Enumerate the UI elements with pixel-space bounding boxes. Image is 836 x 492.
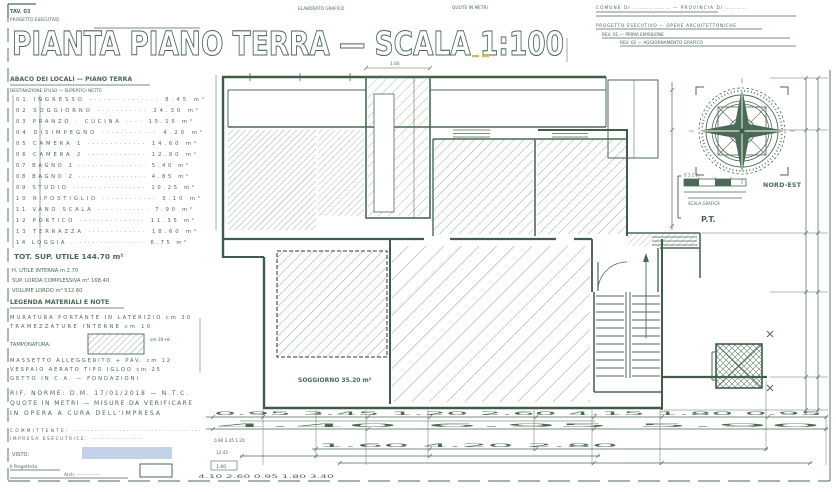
legend-footer: QUOTE IN METRI — MISURE DA VERIFICARE <box>10 400 192 407</box>
sheet-tag: TAV. 03 <box>10 9 31 15</box>
scale-ticks-label: 0 1 2 5 <box>684 173 698 178</box>
title-accent-mark <box>472 55 479 57</box>
title-accent-mark2 <box>482 55 489 57</box>
dim-chain-values: 1.60 4.20 2.80 <box>318 443 620 449</box>
schedule-total: TOT. SUP. UTILE 144.70 m² <box>14 252 124 261</box>
schedule-row: 06 CAMERA 2 ············· 12.80 m² <box>16 152 196 158</box>
scale-caption: SCALA GRAFICA <box>688 201 720 206</box>
detail-square <box>712 344 762 388</box>
schedule-row: 02 SOGGIORNO ··········· 24.30 m² <box>16 108 198 114</box>
schedule-row: 03 PRANZO · CUCINA ···· 15.15 m² <box>16 119 192 125</box>
signature-name: Il Progettista <box>10 464 38 470</box>
dim-label: 1.60 <box>390 61 400 67</box>
legend-heading: LEGENDA MATERIALI E NOTE <box>10 299 109 306</box>
dim-left-values: 12.45 <box>216 450 228 455</box>
revision-row: REV. 01 — PRIMA EMISSIONE <box>602 32 664 38</box>
revision-row: PROGETTO ESECUTIVO — OPERE ARCHITETTONIC… <box>596 23 736 29</box>
floor-plan: SOGGIORNO 35.20 m² <box>216 73 773 410</box>
room-label: SOGGIORNO 35.20 m² <box>298 377 372 384</box>
plan-level-stamp: P.T. <box>701 215 716 224</box>
legend-row: GETTO IN C.A. — FONDAZIONI <box>10 376 138 382</box>
dim-chain-values: 4.40 6.95 5.90 <box>214 423 826 429</box>
room-hatch-nw <box>228 130 316 230</box>
dim-left-values: 0.90 3.45 1.20 <box>214 438 245 443</box>
schedule-heading: ABACO DEI LOCALI — PIANO TERRA <box>10 76 132 83</box>
dim-chain-values: 0.95 3.45 1.20 2.60 4.15 1.80 0.95 <box>214 411 824 417</box>
title-note-right: QUOTE IN METRI <box>452 5 488 11</box>
schedule-row: 05 CAMERA 1 ············· 14.60 m² <box>16 141 196 147</box>
legend-row: MURATURA PORTANTE IN LATERIZIO cm 30 <box>10 315 190 321</box>
stair-arrow-head <box>643 253 649 262</box>
door-arc <box>598 262 627 291</box>
legend-footer: IN OPERA A CURA DELL'IMPRESA <box>10 410 161 417</box>
selection-highlight[interactable] <box>82 447 172 459</box>
drawing-sheet: TAV. 03 PROGETTO ESECUTIVO ELABORATO GRA… <box>0 0 836 492</box>
visto-label: VISTO: <box>12 452 30 458</box>
footer-row: IMPRESA ESECUTRICE: ·················· <box>10 436 142 442</box>
footer-row: COMMITTENTE: ···························… <box>10 428 200 434</box>
room-hatch-center <box>392 246 590 402</box>
schedule-row: 04 DISIMPEGNO ············ 4.20 m² <box>16 130 202 136</box>
revision-row: COMUNE DI ………………… — PROVINCIA DI ………… <box>596 5 746 11</box>
sheet-subtag: PROGETTO ESECUTIVO <box>10 17 60 23</box>
schedule-note: H. UTILE INTERNA m 2.70 <box>12 268 78 274</box>
sheet-title: PIANTA PIANO TERRA — SCALA 1:100 <box>12 24 564 63</box>
footer-notes: COMMITTENTE: ···························… <box>10 428 200 478</box>
dim-left-values: 1.60 <box>216 464 226 470</box>
room-hatch-ne1 <box>434 139 533 234</box>
schedule-row: 14 LOGGIA ·················· 6.75 m² <box>16 240 186 246</box>
compass-rose: NORD-EST 0 1 2 5 SCALA GRAFICA P.T. <box>678 78 802 224</box>
schedule-row: 10 RIPOSTIGLIO ············ 3.10 m² <box>16 196 200 202</box>
schedule-row: 01 INGRESSO ··············· 8.45 m² <box>16 97 204 103</box>
schedule-row: 11 VANO SCALA ············ 7.90 m² <box>16 207 192 213</box>
room-hatch-ne2 <box>537 139 626 234</box>
revision-table: COMUNE DI ………………… — PROVINCIA DI ………… PR… <box>596 5 796 46</box>
schedule-subheading: DESTINAZIONE D'USO — SUPERFICI NETTE <box>10 88 102 94</box>
title-note-left: ELABORATO GRAFICO <box>298 6 345 12</box>
schedule-row: 09 STUDIO ················· 10.25 m² <box>16 185 194 191</box>
revision-row: REV. 02 — AGGIORNAMENTO GRAFICO <box>620 40 703 46</box>
compass-label: NORD-EST <box>763 182 802 189</box>
legend-row: TRAMEZZATURE INTERNE cm 10 <box>9 324 150 330</box>
schedule-row: 07 BAGNO 1 ················ 5.40 m² <box>16 163 188 169</box>
stamp-box <box>140 464 172 477</box>
schedule-row: 08 BAGNO 2 ················ 4.85 m² <box>16 174 188 180</box>
signature-title: Arch. ·················· <box>64 472 101 478</box>
schedule-note: SUP. LORDA COMPLESSIVA m² 168.40 <box>12 278 109 284</box>
graphic-scale-bar: 0 1 2 5 SCALA GRAFICA P.T. <box>678 173 746 225</box>
schedule-row: 13 TERRAZZA ············· 18.60 m² <box>16 229 196 235</box>
legend-row: VESPAIO AERATO TIPO IGLOO cm 25 <box>10 367 160 373</box>
schedule-note: VOLUME LORDO m³ 512.60 <box>12 288 82 294</box>
room-hatch-sw <box>277 251 387 357</box>
room-hatch-n <box>318 130 364 216</box>
legend-row: MASSETTO ALLEGGERITO + PAV. cm 12 <box>10 358 170 364</box>
legend-hatch-swatch <box>88 334 144 354</box>
schedule-row: 12 PORTICO ··············· 11.35 m² <box>16 218 194 224</box>
legend-swatch-label: TAMPONATURA: <box>9 342 51 348</box>
floor-plan-canvas: TAV. 03 PROGETTO ESECUTIVO ELABORATO GRA… <box>0 0 836 492</box>
stairs <box>592 239 662 410</box>
materials-legend: LEGENDA MATERIALI E NOTE MURATURA PORTAN… <box>9 299 200 417</box>
room-schedule: ABACO DEI LOCALI — PIANO TERRA DESTINAZI… <box>10 76 204 294</box>
dim-left-values: 4.10 2.60 0.95 1.80 3.40 <box>198 474 335 479</box>
legend-swatch-value: cm 30+8 <box>150 337 170 343</box>
legend-footer: RIF. NORME: D.M. 17/01/2018 — N.T.C. <box>10 390 188 397</box>
title-block: TAV. 03 PROGETTO ESECUTIVO ELABORATO GRA… <box>10 5 567 63</box>
